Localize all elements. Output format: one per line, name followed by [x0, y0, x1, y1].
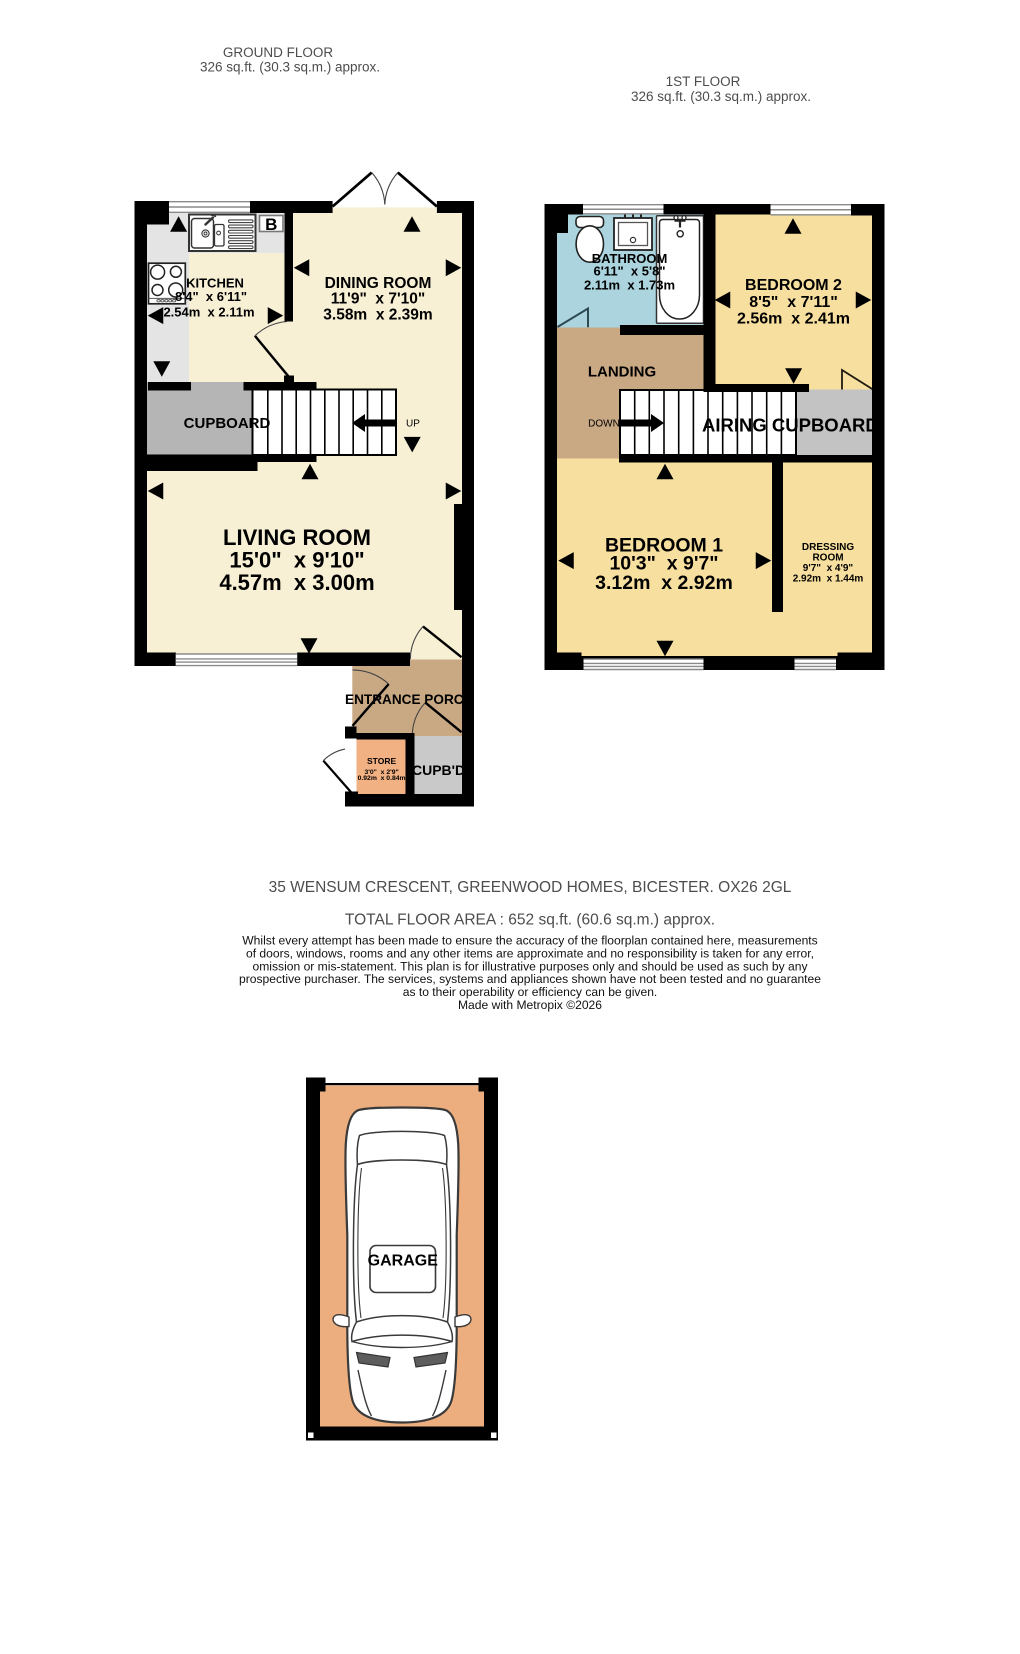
svg-text:AIRING CUPBOARD: AIRING CUPBOARD: [702, 415, 879, 436]
svg-text:4.57m x 3.00m: 4.57m x 3.00m: [219, 570, 374, 595]
svg-text:STORE: STORE: [367, 756, 396, 766]
svg-text:Made with Metropix ©2026: Made with Metropix ©2026: [458, 998, 602, 1012]
svg-text:of doors, windows, rooms and a: of doors, windows, rooms and any other i…: [246, 946, 814, 960]
svg-text:3.12m x 2.92m: 3.12m x 2.92m: [595, 572, 733, 594]
svg-text:8'5" x 7'11": 8'5" x 7'11": [749, 294, 838, 311]
svg-text:8'4" x 6'11": 8'4" x 6'11": [175, 289, 247, 304]
svg-text:LIVING ROOM: LIVING ROOM: [223, 525, 371, 550]
svg-text:TOTAL FLOOR AREA : 652 sq.ft.: TOTAL FLOOR AREA : 652 sq.ft. (60.6 sq.m…: [345, 912, 715, 929]
svg-text:prospective purchaser. The ser: prospective purchaser. The services, sys…: [239, 972, 821, 986]
svg-text:DINING ROOM: DINING ROOM: [325, 275, 432, 292]
svg-text:CUPBOARD: CUPBOARD: [184, 415, 271, 432]
svg-text:9'7" x 4'9": 9'7" x 4'9": [803, 563, 854, 574]
svg-text:GARAGE: GARAGE: [368, 1253, 439, 1270]
svg-text:BEDROOM 2: BEDROOM 2: [745, 277, 842, 294]
svg-text:as to their operability or eff: as to their operability or efficiency ca…: [403, 985, 658, 999]
svg-text:326 sq.ft. (30.3 sq.m.) approx: 326 sq.ft. (30.3 sq.m.) approx.: [200, 60, 380, 75]
svg-text:ROOM: ROOM: [812, 553, 843, 564]
svg-text:CUPB'D: CUPB'D: [412, 762, 465, 778]
svg-text:LANDING: LANDING: [588, 364, 656, 381]
svg-text:3.58m x 2.39m: 3.58m x 2.39m: [323, 307, 432, 324]
svg-text:2.11m x 1.73m: 2.11m x 1.73m: [584, 277, 675, 292]
svg-text:11'9" x 7'10": 11'9" x 7'10": [331, 291, 425, 308]
svg-text:326 sq.ft. (30.3 sq.m.) approx: 326 sq.ft. (30.3 sq.m.) approx.: [631, 89, 811, 104]
svg-text:6'11" x 5'8": 6'11" x 5'8": [593, 264, 665, 279]
svg-text:1ST FLOOR: 1ST FLOOR: [666, 74, 741, 89]
svg-text:15'0" x 9'10": 15'0" x 9'10": [229, 548, 364, 573]
svg-text:2.92m x 1.44m: 2.92m x 1.44m: [793, 574, 864, 585]
svg-text:B: B: [265, 215, 277, 234]
svg-text:omission or mis-statement. Thi: omission or mis-statement. This plan is …: [252, 959, 808, 973]
svg-text:2.56m x 2.41m: 2.56m x 2.41m: [737, 311, 850, 328]
svg-text:ENTRANCE PORCH: ENTRANCE PORCH: [345, 692, 473, 707]
svg-text:UP: UP: [406, 419, 420, 430]
svg-text:DOWN: DOWN: [588, 419, 620, 430]
svg-text:GROUND FLOOR: GROUND FLOOR: [223, 45, 334, 60]
svg-text:0.92m x 0.84m: 0.92m x 0.84m: [358, 775, 406, 782]
svg-text:DRESSING: DRESSING: [802, 542, 854, 553]
svg-text:35 WENSUM CRESCENT, GREENWOOD: 35 WENSUM CRESCENT, GREENWOOD HOMES, BIC…: [269, 879, 792, 896]
svg-text:2.54m x 2.11m: 2.54m x 2.11m: [163, 305, 254, 320]
svg-text:Whilst every attempt has been: Whilst every attempt has been made to en…: [242, 934, 817, 948]
